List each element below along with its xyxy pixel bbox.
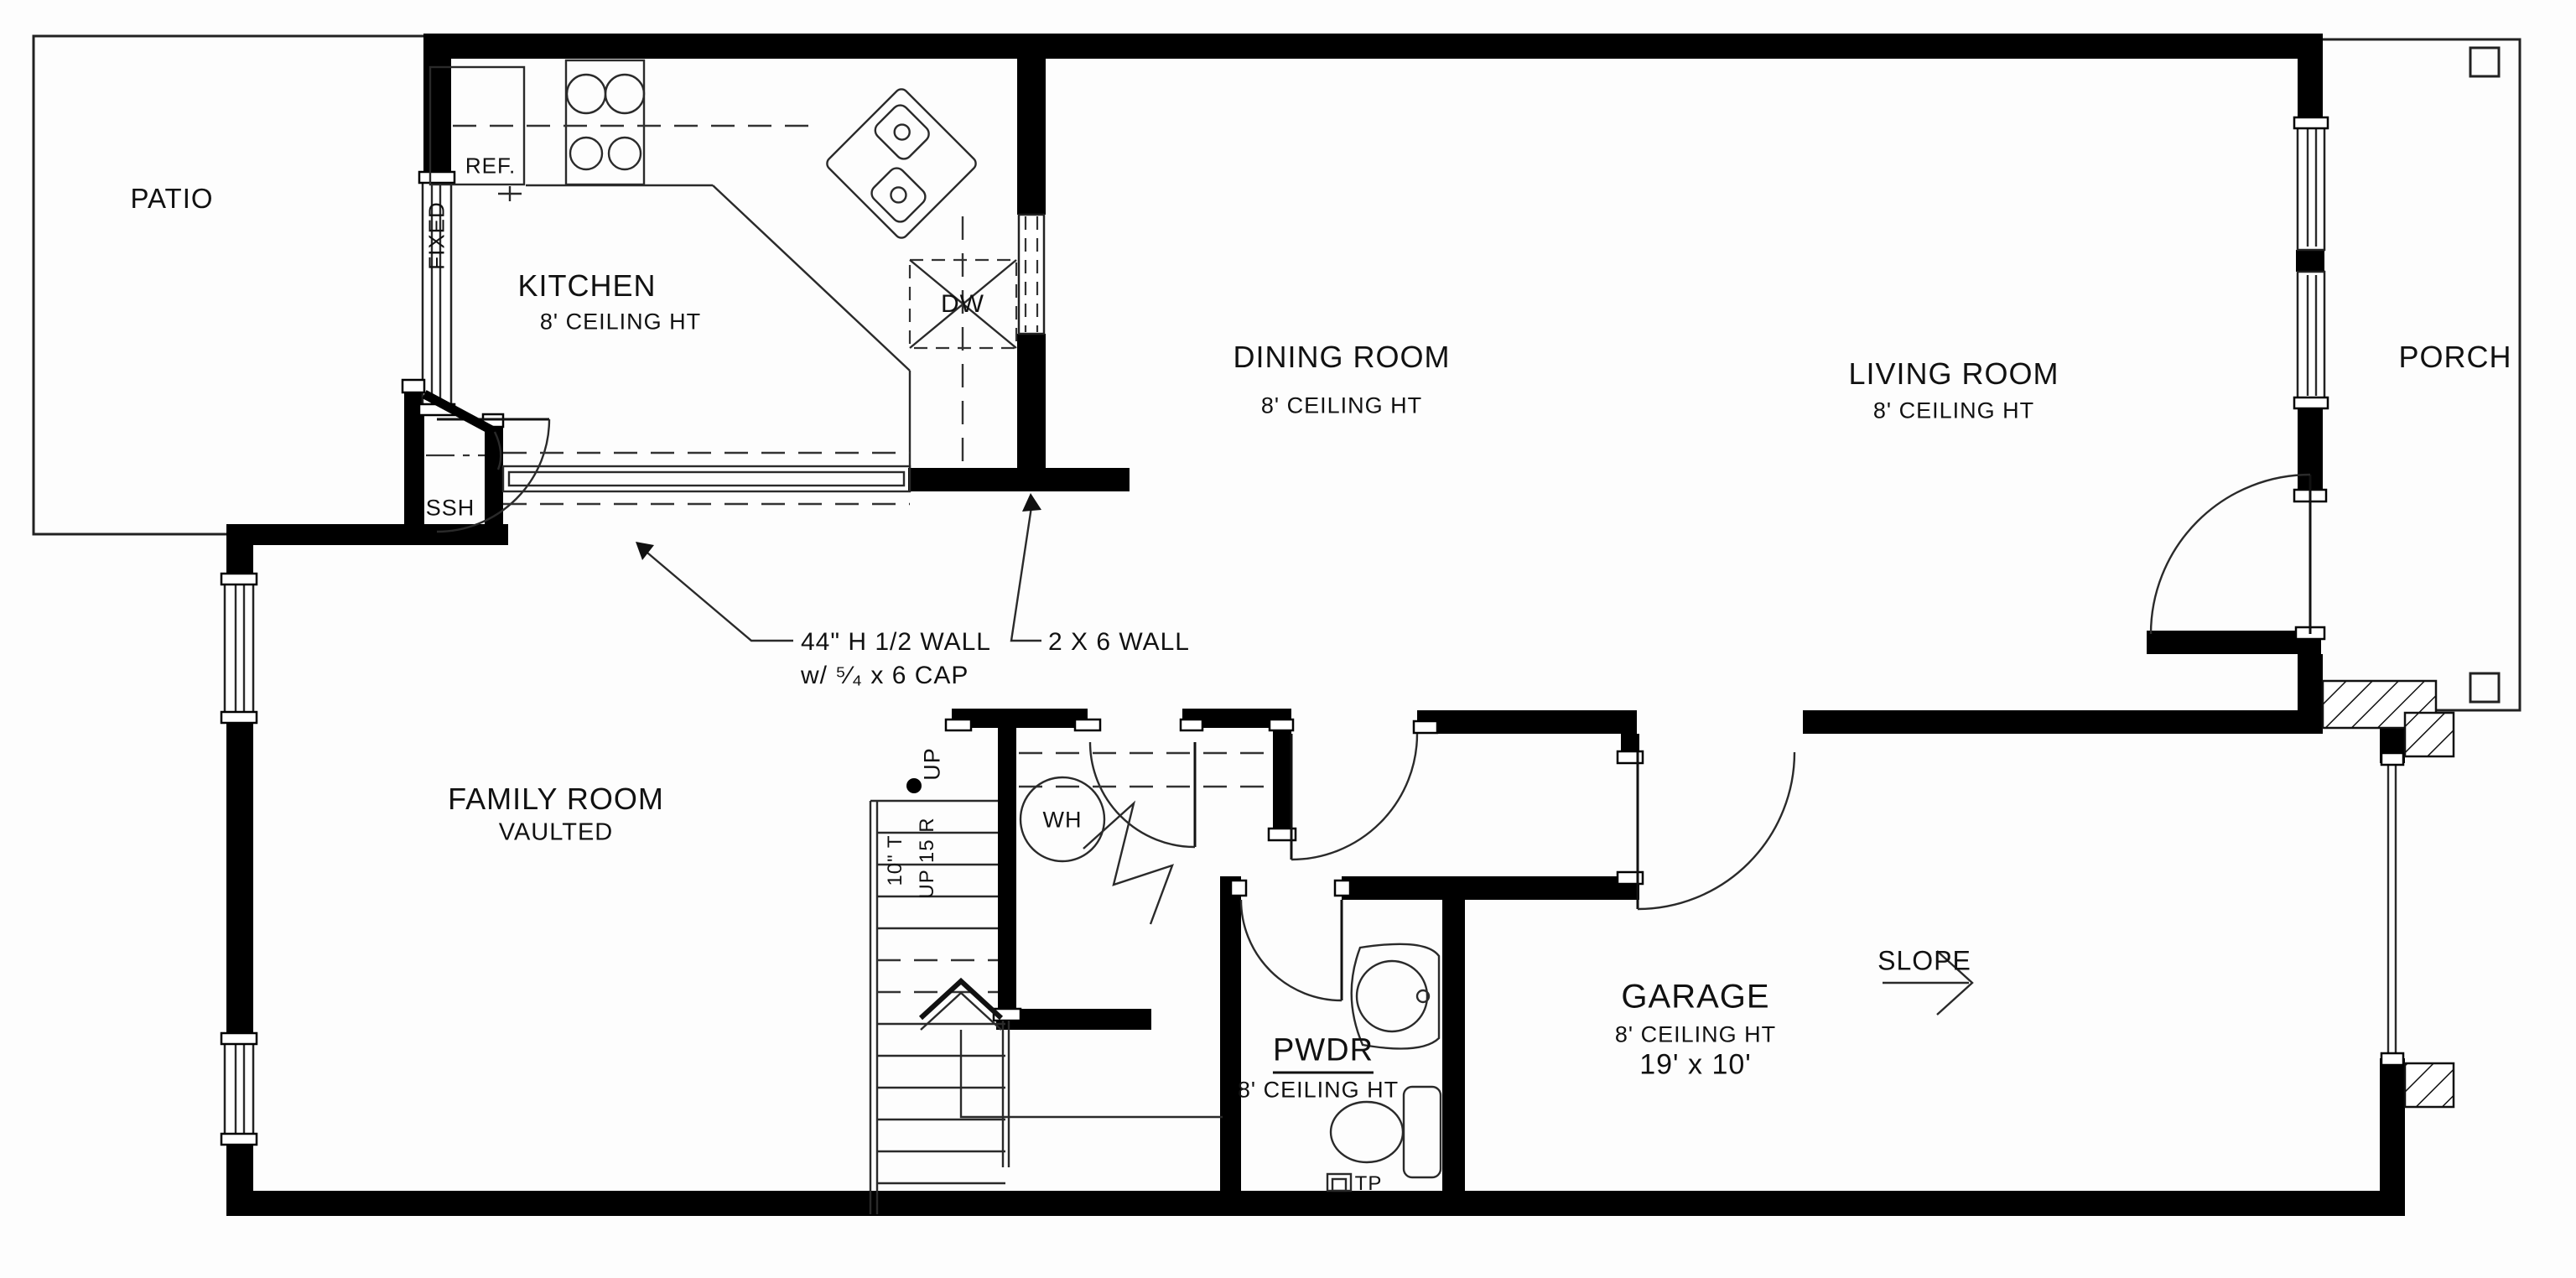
dining-hall-door <box>1291 734 1417 860</box>
powder-room-door <box>1241 900 1342 1000</box>
stair-guide-line <box>961 1030 1223 1117</box>
front-door <box>2151 475 2310 634</box>
garage-overhead-door <box>2381 753 2403 1065</box>
porch-outline <box>2323 39 2520 710</box>
two-by-six-leader-arrowhead <box>1022 493 1041 512</box>
room-label-porch: PORCH <box>2398 340 2511 375</box>
porch-post-top <box>2470 48 2499 76</box>
two-by-six-annotation: 2 X 6 WALL <box>1048 628 1190 657</box>
dishwasher-label: DW <box>941 290 984 319</box>
garage-entry-door <box>1638 752 1794 909</box>
water-heater-label: WH <box>1043 808 1083 834</box>
porch-post-bottom <box>2470 673 2499 702</box>
room-label-family: FAMILY ROOM <box>448 782 664 817</box>
two-by-six-leader-line <box>1011 501 1041 641</box>
stove <box>566 60 644 184</box>
dining-ceiling-note: 8' CEILING HT <box>1261 393 1422 419</box>
half-wall-leader-arrowhead <box>636 542 654 560</box>
family-vaulted-note: VAULTED <box>499 819 613 847</box>
ssh-label: SSH <box>426 496 475 522</box>
half-wall-leader-line <box>642 548 793 641</box>
room-label-dining: DINING ROOM <box>1233 340 1451 375</box>
fixed-window-label: FIXED <box>424 201 450 270</box>
toilet-paper-label: TP <box>1355 1172 1383 1196</box>
stair-up-label: UP <box>920 747 946 781</box>
living-window-lower <box>2294 272 2328 408</box>
family-window-upper <box>221 574 257 723</box>
annotation-leaders <box>636 493 1972 1015</box>
room-label-living: LIVING ROOM <box>1848 356 2059 392</box>
garage-pad-top-hatch <box>2405 713 2454 756</box>
family-window-lower <box>221 1033 257 1145</box>
kitchen-ceiling-note: 8' CEILING HT <box>540 309 701 335</box>
room-label-garage: GARAGE <box>1621 979 1769 1016</box>
room-label-kitchen: KITCHEN <box>517 268 656 304</box>
floor-plan-page: PATIO KITCHEN 8' CEILING HT DINING ROOM … <box>0 0 2576 1278</box>
two-by-six-wall-section <box>1019 215 1044 334</box>
slope-label: SLOPE <box>1877 946 1971 977</box>
door-jambs <box>402 380 2326 1021</box>
stair-hall-door <box>1090 742 1195 847</box>
garage-ceiling-note: 8' CEILING HT <box>1615 1022 1776 1048</box>
room-label-powder: PWDR <box>1273 1033 1374 1074</box>
stair-riser-label: UP 15 R <box>916 817 939 898</box>
kitchen-fixtures <box>430 60 1016 468</box>
corner-sink <box>824 86 979 241</box>
room-label-patio: PATIO <box>130 183 213 215</box>
living-ceiling-note: 8' CEILING HT <box>1873 398 2034 424</box>
garage-pad-bottom-hatch <box>2405 1063 2454 1107</box>
stair-direction-chevron-icon <box>921 981 1001 1018</box>
powder-ceiling-note: 8' CEILING HT <box>1238 1078 1399 1104</box>
counter-diagonal-line <box>713 185 910 371</box>
toilet-paper-holder <box>1327 1174 1351 1191</box>
half-wall-annotation-line1: 44" H 1/2 WALL <box>801 628 991 657</box>
refrigerator-label: REF. <box>465 153 516 179</box>
garage-size-note: 19' x 10' <box>1639 1049 1752 1082</box>
living-window-upper <box>2294 117 2328 250</box>
patio-outline <box>34 36 436 534</box>
stair-tread-label: 10" T <box>884 834 907 886</box>
half-wall-annotation-line2: w/ ⁵⁄₄ x 6 CAP <box>801 662 969 690</box>
